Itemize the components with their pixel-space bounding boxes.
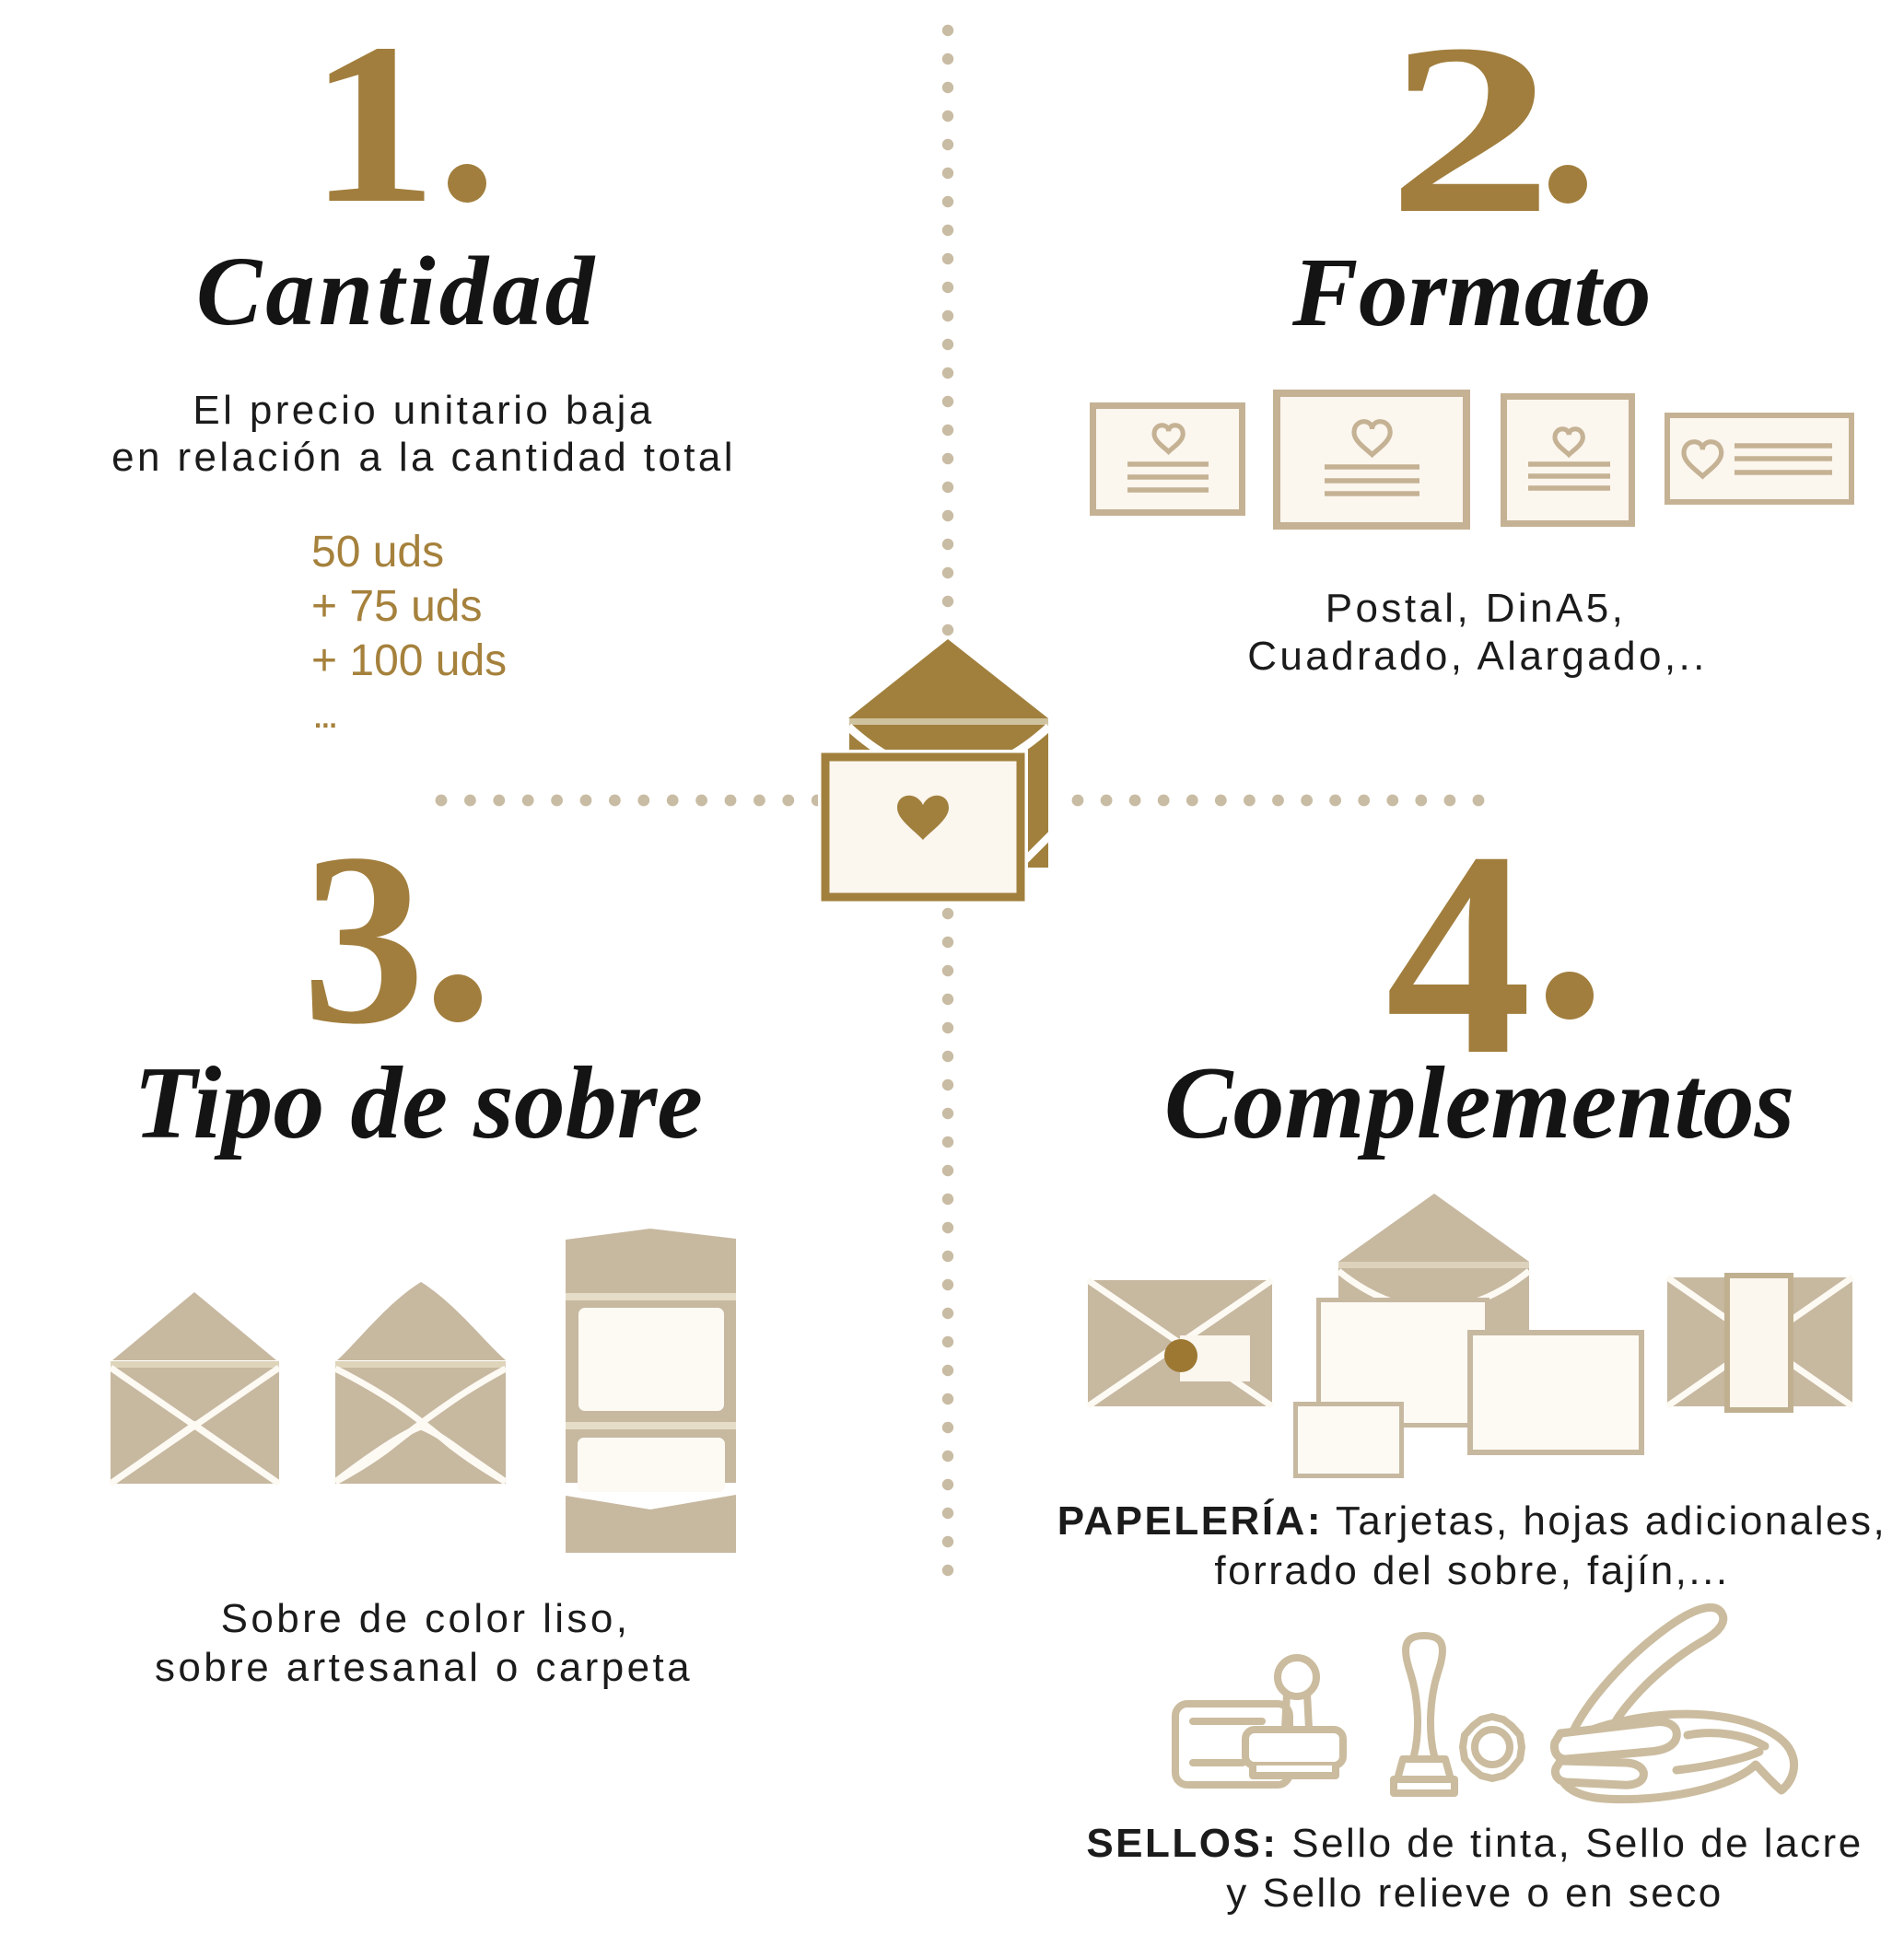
- svg-text:SELLOS: Sello de tinta, Sello: SELLOS: Sello de tinta, Sello de lacre: [1086, 1821, 1863, 1866]
- svg-text:Tipo de sobre: Tipo de sobre: [134, 1046, 703, 1160]
- svg-text:PAPELERÍA: Tarjetas, hojas adi: PAPELERÍA: Tarjetas, hojas adicionales,: [1057, 1498, 1886, 1544]
- svg-text:1: 1: [309, 0, 438, 251]
- svg-text:3: 3: [302, 802, 426, 1075]
- svg-text:Formato: Formato: [1291, 239, 1652, 347]
- svg-text:...: ...: [312, 692, 335, 737]
- svg-text:en relación a la cantidad tota: en relación a la cantidad total: [111, 435, 736, 480]
- svg-text:Sobre de color liso,: Sobre de color liso,: [221, 1596, 631, 1641]
- svg-text:sobre artesanal o carpeta: sobre artesanal o carpeta: [155, 1645, 693, 1690]
- svg-text:Complementos: Complementos: [1164, 1046, 1794, 1160]
- svg-text:2: 2: [1387, 0, 1553, 264]
- svg-text:El precio unitario baja: El precio unitario baja: [193, 388, 654, 433]
- svg-text:+ 100 uds: + 100 uds: [311, 636, 507, 685]
- svg-text:Postal, DinA5,: Postal, DinA5,: [1326, 586, 1626, 631]
- svg-text:50 uds: 50 uds: [311, 528, 444, 577]
- svg-text:y Sello relieve o en seco: y Sello relieve o en seco: [1226, 1871, 1723, 1916]
- svg-text:+ 75 uds: + 75 uds: [311, 582, 482, 631]
- svg-text:forrado del sobre, fajín,...: forrado del sobre, fajín,...: [1214, 1548, 1729, 1593]
- svg-text:Cuadrado, Alargado,..: Cuadrado, Alargado,..: [1247, 634, 1707, 679]
- svg-text:Cantidad: Cantidad: [196, 238, 598, 346]
